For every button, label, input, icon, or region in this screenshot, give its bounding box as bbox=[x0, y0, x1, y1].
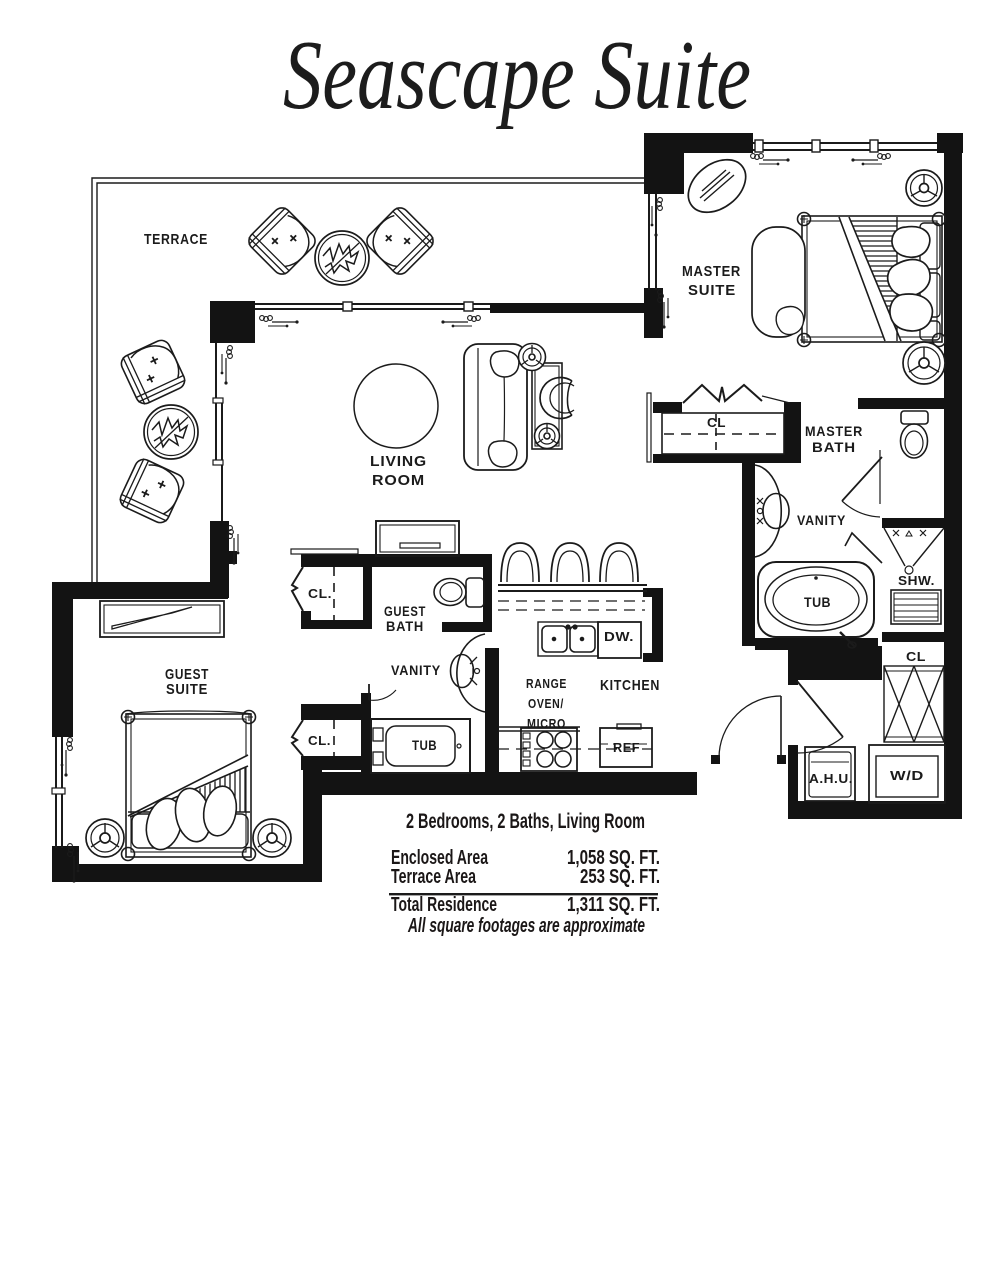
svg-text:Seascape Suite: Seascape Suite bbox=[283, 21, 751, 130]
svg-text:VANITY: VANITY bbox=[797, 512, 846, 528]
svg-text:1,311 SQ. FT.: 1,311 SQ. FT. bbox=[567, 894, 660, 916]
svg-text:W/D: W/D bbox=[890, 768, 924, 783]
svg-text:DW.: DW. bbox=[604, 629, 634, 644]
svg-text:CL.: CL. bbox=[308, 586, 332, 601]
svg-text:MASTER: MASTER bbox=[682, 263, 741, 280]
svg-text:TUB: TUB bbox=[412, 737, 437, 753]
svg-text:Total Residence: Total Residence bbox=[391, 894, 497, 916]
svg-text:A.H.U.: A.H.U. bbox=[809, 771, 853, 786]
svg-text:MASTER: MASTER bbox=[805, 423, 863, 439]
svg-text:GUEST: GUEST bbox=[384, 603, 426, 619]
svg-text:TERRACE: TERRACE bbox=[144, 231, 208, 248]
svg-text:TUB: TUB bbox=[804, 594, 831, 610]
svg-text:CL: CL bbox=[906, 649, 926, 664]
svg-text:CL: CL bbox=[707, 415, 726, 430]
svg-text:RANGE: RANGE bbox=[526, 676, 567, 691]
svg-text:SUITE: SUITE bbox=[688, 282, 736, 299]
svg-text:ROOM: ROOM bbox=[372, 472, 425, 489]
svg-text:BATH: BATH bbox=[386, 618, 424, 634]
svg-text:2 Bedrooms, 2 Baths, Living Ro: 2 Bedrooms, 2 Baths, Living Room bbox=[406, 810, 645, 833]
svg-text:BATH: BATH bbox=[812, 439, 856, 455]
svg-text:KITCHEN: KITCHEN bbox=[600, 677, 660, 694]
svg-text:OVEN/: OVEN/ bbox=[528, 696, 564, 711]
svg-text:SUITE: SUITE bbox=[166, 681, 208, 698]
svg-text:SHW.: SHW. bbox=[898, 573, 935, 588]
svg-text:VANITY: VANITY bbox=[391, 662, 441, 678]
svg-text:Terrace Area: Terrace Area bbox=[391, 866, 477, 888]
svg-text:CL.: CL. bbox=[308, 733, 331, 748]
svg-text:253 SQ. FT.: 253 SQ. FT. bbox=[580, 866, 660, 888]
svg-text:MICRO: MICRO bbox=[527, 716, 566, 731]
svg-text:LIVING: LIVING bbox=[370, 453, 427, 470]
svg-text:REF: REF bbox=[613, 740, 640, 755]
svg-text:All square footages are approx: All square footages are approximate bbox=[407, 915, 645, 937]
